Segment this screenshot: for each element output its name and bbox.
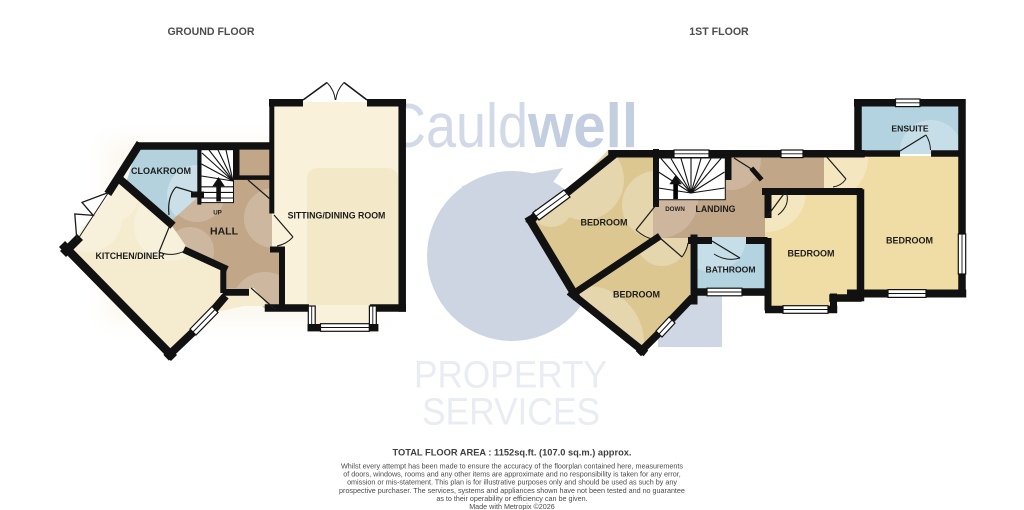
svg-text:UP: UP <box>213 210 222 217</box>
svg-text:HALL: HALL <box>210 226 239 238</box>
svg-text:CLOAKROOM: CLOAKROOM <box>131 166 191 176</box>
svg-text:BATHROOM: BATHROOM <box>706 265 756 275</box>
svg-text:1ST FLOOR: 1ST FLOOR <box>689 26 749 38</box>
svg-text:DOWN: DOWN <box>665 206 685 213</box>
svg-text:PROPERTY: PROPERTY <box>414 355 607 397</box>
svg-text:LANDING: LANDING <box>695 204 735 214</box>
svg-text:SITTING/DINING ROOM: SITTING/DINING ROOM <box>288 211 386 221</box>
svg-text:KITCHEN/DINER: KITCHEN/DINER <box>96 251 166 261</box>
svg-text:ENSUITE: ENSUITE <box>891 124 929 134</box>
svg-text:BEDROOM: BEDROOM <box>613 290 660 300</box>
svg-text:GROUND FLOOR: GROUND FLOOR <box>167 26 254 38</box>
svg-text:Cauld: Cauld <box>387 92 528 161</box>
svg-text:BEDROOM: BEDROOM <box>788 249 835 259</box>
svg-text:SERVICES: SERVICES <box>422 392 600 434</box>
svg-text:BEDROOM: BEDROOM <box>581 218 628 228</box>
svg-text:TOTAL FLOOR AREA : 1152sq.ft.: TOTAL FLOOR AREA : 1152sq.ft. (107.0 sq.… <box>392 448 631 458</box>
svg-text:Made with Metropix ©2026: Made with Metropix ©2026 <box>469 502 555 510</box>
svg-text:BEDROOM: BEDROOM <box>886 236 933 246</box>
